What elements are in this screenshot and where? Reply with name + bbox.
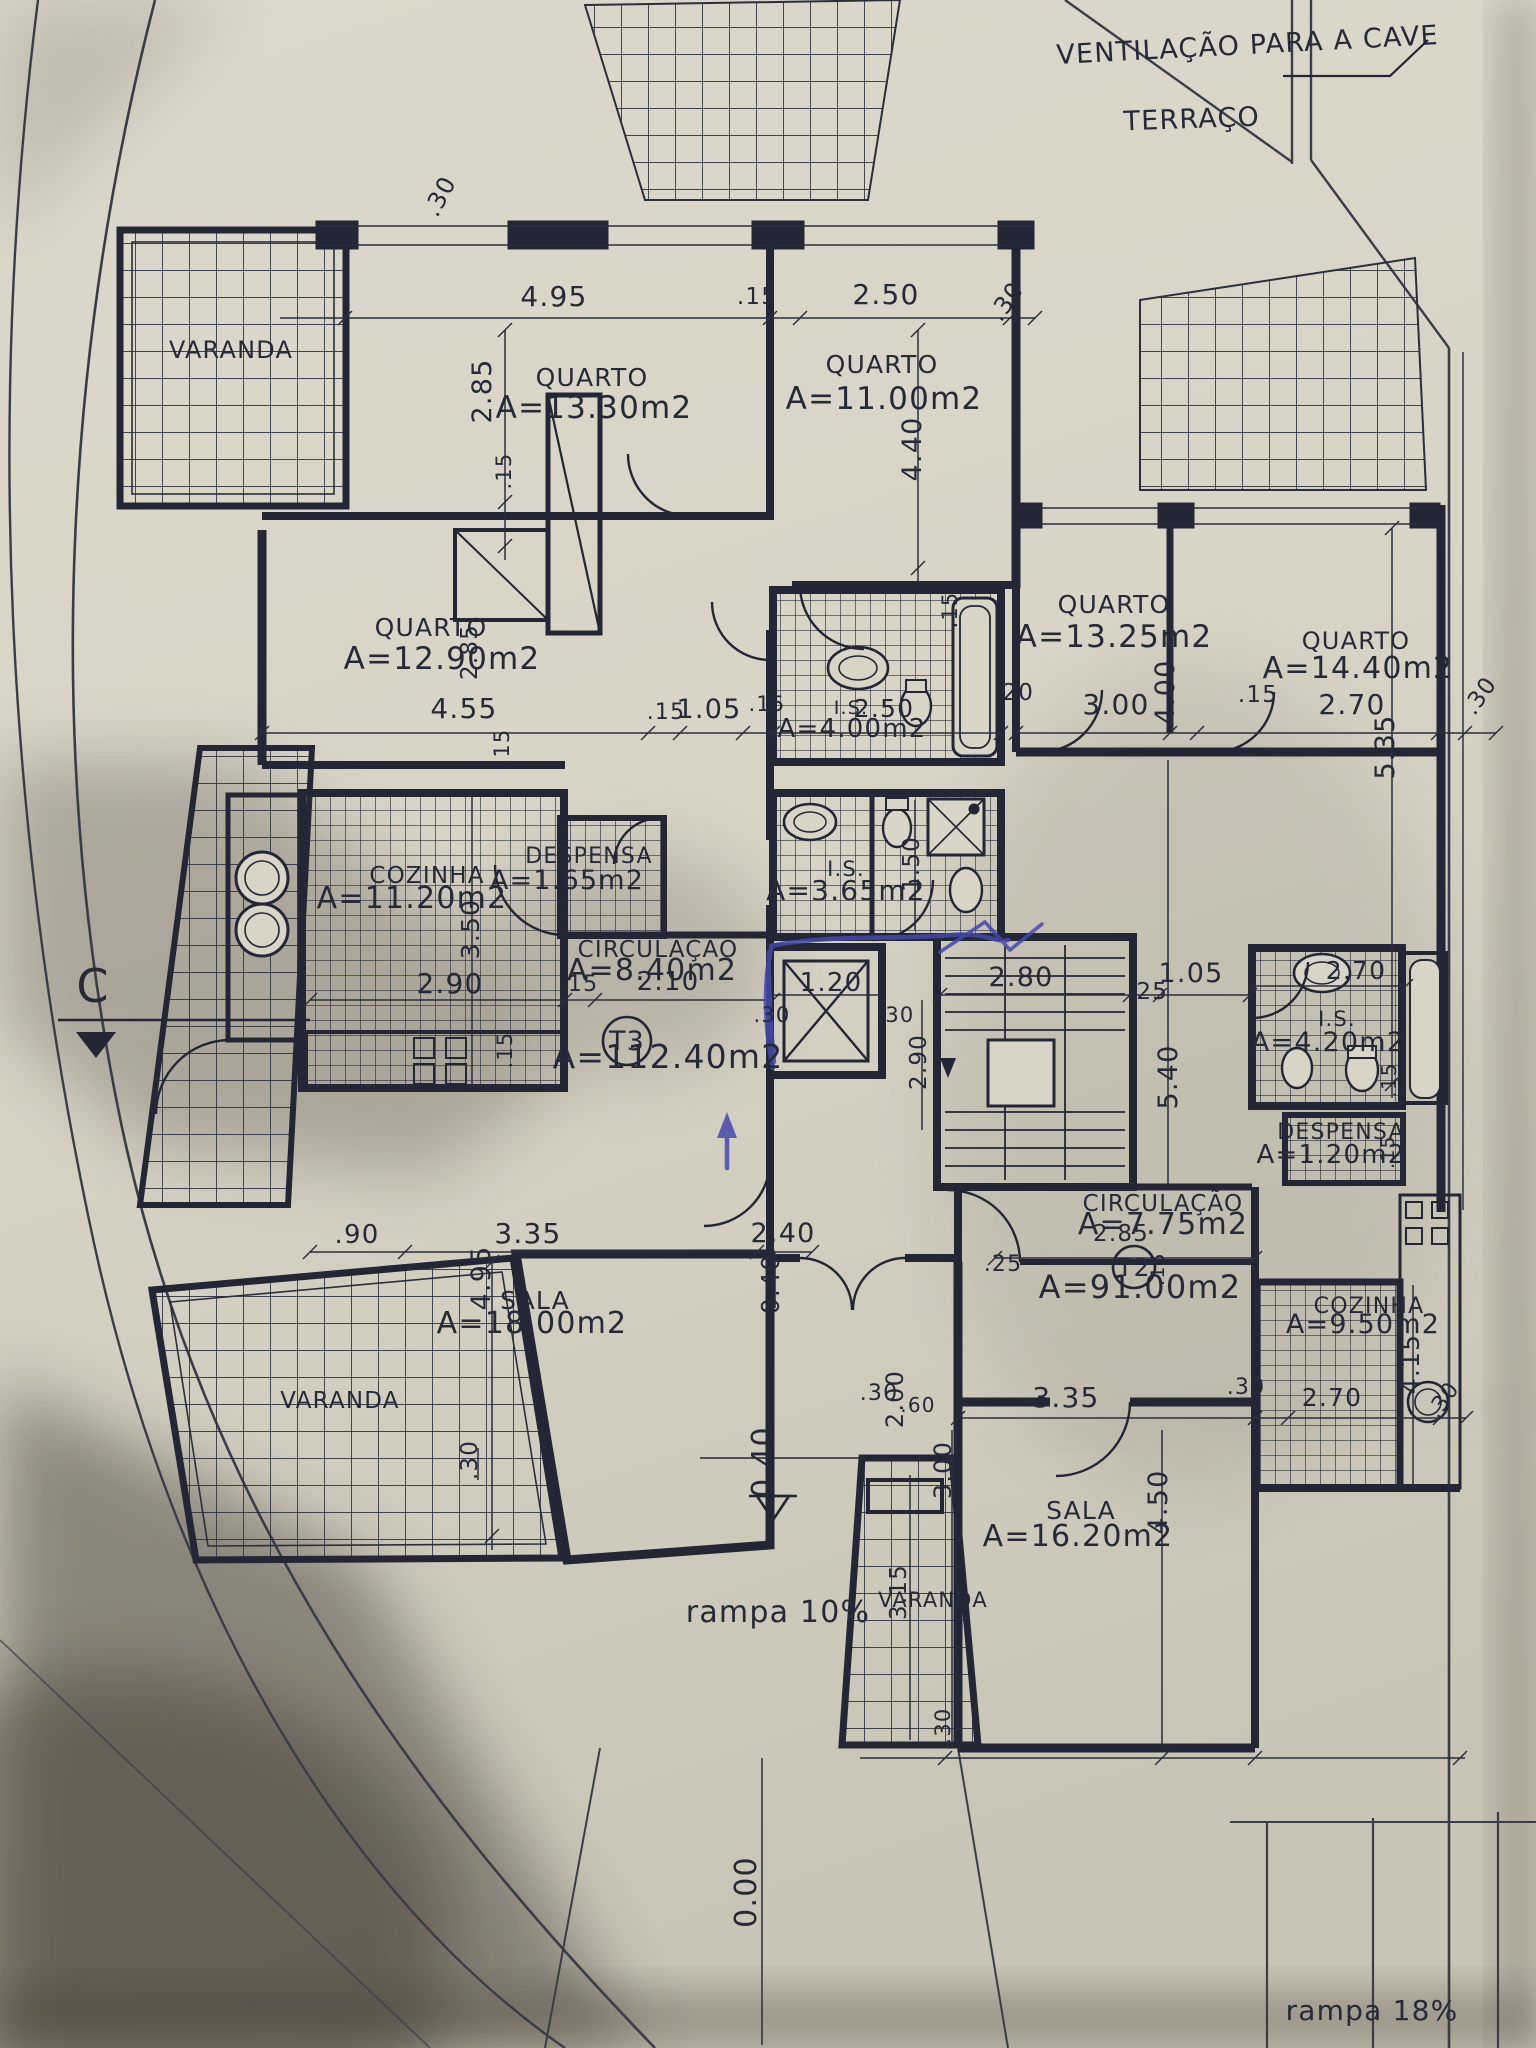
varanda-topleft-deck — [120, 230, 346, 506]
room-quarto4-area: A=13.25m2 — [1016, 619, 1213, 655]
dim-290-hall: 2.90 — [906, 1034, 932, 1090]
room-is3-area: A=4.20m2 — [1251, 1027, 1405, 1058]
dim-030-var2b: .30 — [931, 1708, 955, 1745]
dim-440-q2: 4.40 — [897, 417, 928, 482]
floor-plan-photo: VENTILAÇÃO PARA A CAVETERRAÇOrampa 10%ra… — [0, 0, 1536, 2048]
ramp-10-label: rampa 10% — [686, 1595, 870, 1630]
dim-285-circ2: 2.85 — [1093, 1221, 1149, 1247]
room-quarto1-name: QUARTO — [536, 363, 649, 392]
dim-455-q3: 4.55 — [430, 692, 497, 725]
dim-240-entry: 2.40 — [751, 1218, 816, 1249]
dim-030-sala1v: .30 — [457, 1440, 483, 1480]
room-quarto2-area: A=11.00m2 — [786, 381, 983, 417]
dim-285-q3: 2.85 — [457, 624, 483, 680]
dim-335-sala1: 3.35 — [494, 1217, 561, 1250]
dim-400-q4: 4.00 — [1150, 660, 1181, 725]
dim-020-q4: .20 — [994, 680, 1034, 706]
room-quarto3-area: A=12.90m2 — [344, 641, 541, 677]
dim-450-sala2: 4.50 — [1143, 1470, 1174, 1535]
dim-030-elevr: .30 — [878, 1003, 915, 1027]
dim-025-circ2: .25 — [984, 1252, 1023, 1277]
room-quarto4-name: QUARTO — [1058, 590, 1171, 619]
dim-495-top: 4.95 — [520, 280, 587, 313]
dim-210-circ: 2.10 — [637, 967, 700, 997]
dim-290-coz: 2.90 — [416, 967, 483, 1000]
level-mark-000: 0.00 — [729, 1856, 764, 1928]
dim-300-q4: 3.00 — [1082, 688, 1149, 721]
dim-105-mid: 1.05 — [677, 694, 742, 725]
dim-015-q3v: .15 — [490, 729, 514, 766]
dim-280-stairs: 2.80 — [989, 962, 1054, 993]
terrace-label: TERRAÇO — [1122, 102, 1260, 138]
dim-015-mid2: .15 — [749, 692, 786, 716]
dim-335-sala2: 3.35 — [1032, 1381, 1099, 1414]
dim-015-top: .15 — [737, 284, 777, 310]
dim-015-coz: .15 — [560, 972, 599, 997]
dim-030-elevl: .30 — [754, 1003, 791, 1027]
dim-060-porch: .60 — [900, 1393, 935, 1417]
apartment-t3-area: A=112.40m2 — [553, 1037, 784, 1076]
dim-415-coz2: 4.15 — [1396, 1334, 1425, 1394]
dim-285-left: 2.85 — [467, 359, 498, 424]
room-quarto1-area: A=13.30m2 — [496, 390, 693, 426]
ramp-18-label: rampa 18% — [1286, 1994, 1459, 2027]
dim-315-var2: 3.15 — [886, 1564, 912, 1620]
dim-015-q5: .15 — [1238, 682, 1278, 708]
dim-150-is2: 1.50 — [899, 836, 925, 892]
room-despensa1-area: A=1.65m2 — [490, 865, 644, 896]
room-varanda-left: VARANDA — [280, 1388, 399, 1414]
dim-120-elev: 1.20 — [800, 968, 863, 998]
dim-495-sala1: 4.95 — [466, 1246, 497, 1311]
dim-250-top: 2.50 — [852, 278, 919, 311]
level-mark-040: 0.40 — [746, 1426, 781, 1498]
dim-250-is1: 2.50 — [854, 694, 914, 723]
room-quarto5-area: A=14.40m2 — [1263, 651, 1454, 686]
dim-090-sala1: .90 — [335, 1220, 380, 1250]
dim-350-coz: 3.50 — [456, 899, 485, 959]
dim-300-var2: 3.00 — [929, 1441, 957, 1499]
dim-015-leftv: .15 — [492, 453, 516, 490]
dim-540-hall2: 5.40 — [1153, 1045, 1184, 1110]
dim-015-desp2: .15 — [1377, 1135, 1399, 1169]
dim-015-cozv: .15 — [493, 1032, 517, 1069]
room-quarto2-name: QUARTO — [826, 350, 939, 379]
section-c-letter: C — [76, 959, 109, 1013]
dim-535-q5: 5.35 — [1370, 715, 1401, 780]
dim-270-coz2: 2.70 — [1302, 1383, 1362, 1412]
dim-015-is3v: .15 — [1377, 1062, 1401, 1097]
dim-270-is3: 2.70 — [1326, 956, 1386, 985]
dim-105-hall2: 1.05 — [1159, 958, 1224, 989]
dim-030-coz2: .30 — [1227, 1375, 1266, 1400]
dim-040-entry: 0.40 — [756, 1254, 785, 1314]
dim-015-is1v: .15 — [938, 592, 962, 629]
room-varanda-topleft: VARANDA — [169, 336, 293, 364]
